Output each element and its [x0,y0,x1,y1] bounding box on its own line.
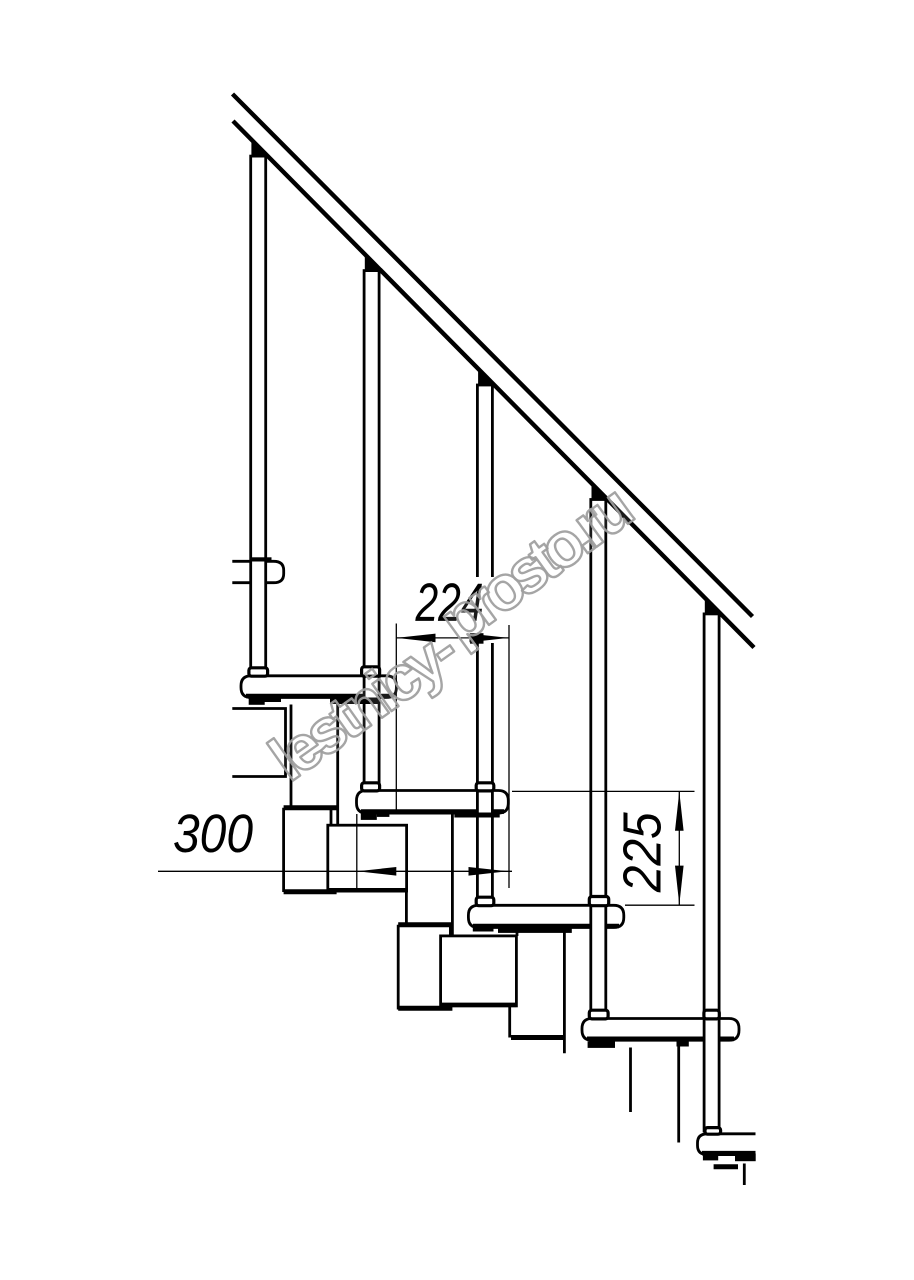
svg-text:225: 225 [613,811,673,893]
svg-text:300: 300 [173,804,253,864]
